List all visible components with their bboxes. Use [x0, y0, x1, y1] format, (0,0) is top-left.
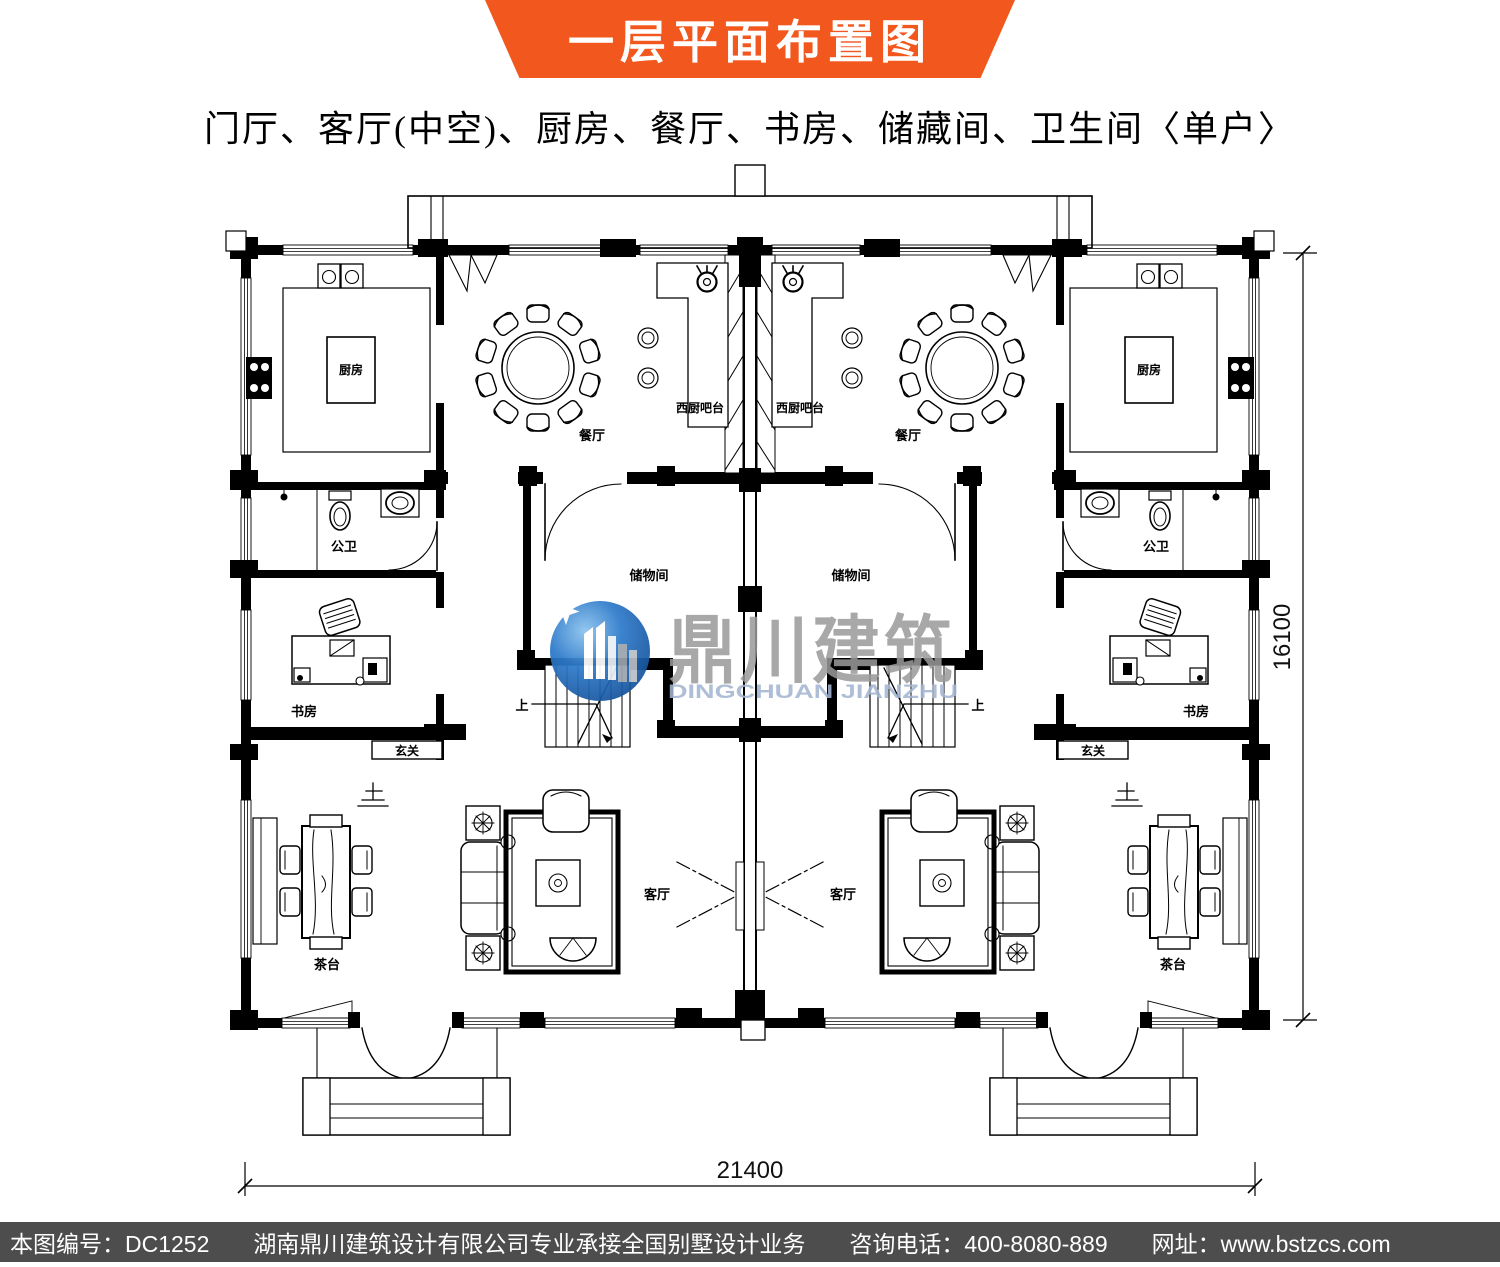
room-label-study-left: 书房: [291, 704, 317, 719]
footer-drawing-number: 本图编号：DC1252: [10, 1225, 209, 1259]
room-label-bar-right: 西厨吧台: [776, 400, 824, 415]
room-label-foyer-left: 玄关: [395, 743, 419, 758]
dimension-right: 16100: [1269, 604, 1296, 671]
room-label-storage-right: 储物间: [830, 568, 870, 583]
room-label-storage-left: 储物间: [628, 568, 668, 583]
room-label-dining-left: 餐厅: [578, 428, 605, 443]
room-label-bath-left: 公卫: [331, 539, 357, 554]
room-label-bar-left: 西厨吧台: [676, 400, 724, 415]
dimension-bottom: 21400: [717, 1157, 784, 1184]
room-label-living-right: 客厅: [830, 887, 856, 902]
room-label-foyer-right: 玄关: [1081, 743, 1105, 758]
page-title: 一层平面布置图: [568, 6, 932, 72]
stairs-up-label-left: 上: [515, 698, 528, 713]
room-label-dining-right: 餐厅: [894, 428, 921, 443]
title-banner: 一层平面布置图: [485, 0, 1015, 78]
footer-phone: 咨询电话：400-8080-889: [849, 1225, 1107, 1259]
room-label-tea-left: 茶台: [314, 957, 340, 972]
footer-company: 湖南鼎川建筑设计有限公司专业承接全国别墅设计业务: [253, 1225, 805, 1259]
stairs-up-label-right: 上: [971, 698, 984, 713]
room-label-study-right: 书房: [1183, 704, 1209, 719]
room-label-kitchen-left: 厨房: [339, 362, 363, 377]
watermark-cn-text: 鼎川建筑: [668, 609, 956, 692]
watermark-en-text: DINGCHUAN JIANZHU: [668, 682, 958, 703]
subtitle: 门厅、客厅(中空)、厨房、餐厅、书房、储藏间、卫生间〈单户〉: [0, 100, 1500, 152]
watermark-logo: 鼎川建筑 DINGCHUAN JIANZHU: [550, 598, 958, 703]
room-label-tea-right: 茶台: [1160, 957, 1186, 972]
room-label-living-left: 客厅: [644, 887, 670, 902]
floor-plan: 21400 16100 鼎川建筑 DINGCHUAN JIANZHU 厨房 厨房…: [0, 0, 1500, 1262]
shared-structure: [408, 165, 1092, 1040]
footer-website: 网址：www.bstzcs.com: [1152, 1225, 1391, 1259]
room-label-bath-right: 公卫: [1143, 539, 1169, 554]
footer-bar: 本图编号：DC1252 湖南鼎川建筑设计有限公司专业承接全国别墅设计业务 咨询电…: [0, 1222, 1500, 1262]
room-label-kitchen-right: 厨房: [1137, 362, 1161, 377]
